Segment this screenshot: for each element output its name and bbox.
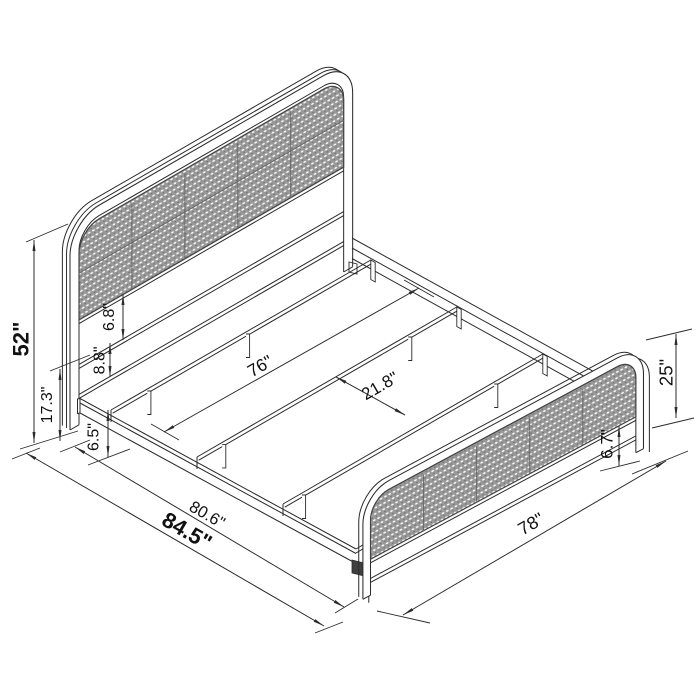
svg-text:17.3": 17.3" bbox=[39, 387, 56, 424]
svg-text:25": 25" bbox=[656, 359, 677, 386]
svg-text:52": 52" bbox=[8, 322, 33, 357]
svg-text:6.5": 6.5" bbox=[86, 423, 103, 451]
svg-text:6.8": 6.8" bbox=[101, 303, 118, 331]
svg-text:6.7": 6.7" bbox=[598, 429, 617, 459]
svg-text:8.8": 8.8" bbox=[92, 346, 109, 374]
